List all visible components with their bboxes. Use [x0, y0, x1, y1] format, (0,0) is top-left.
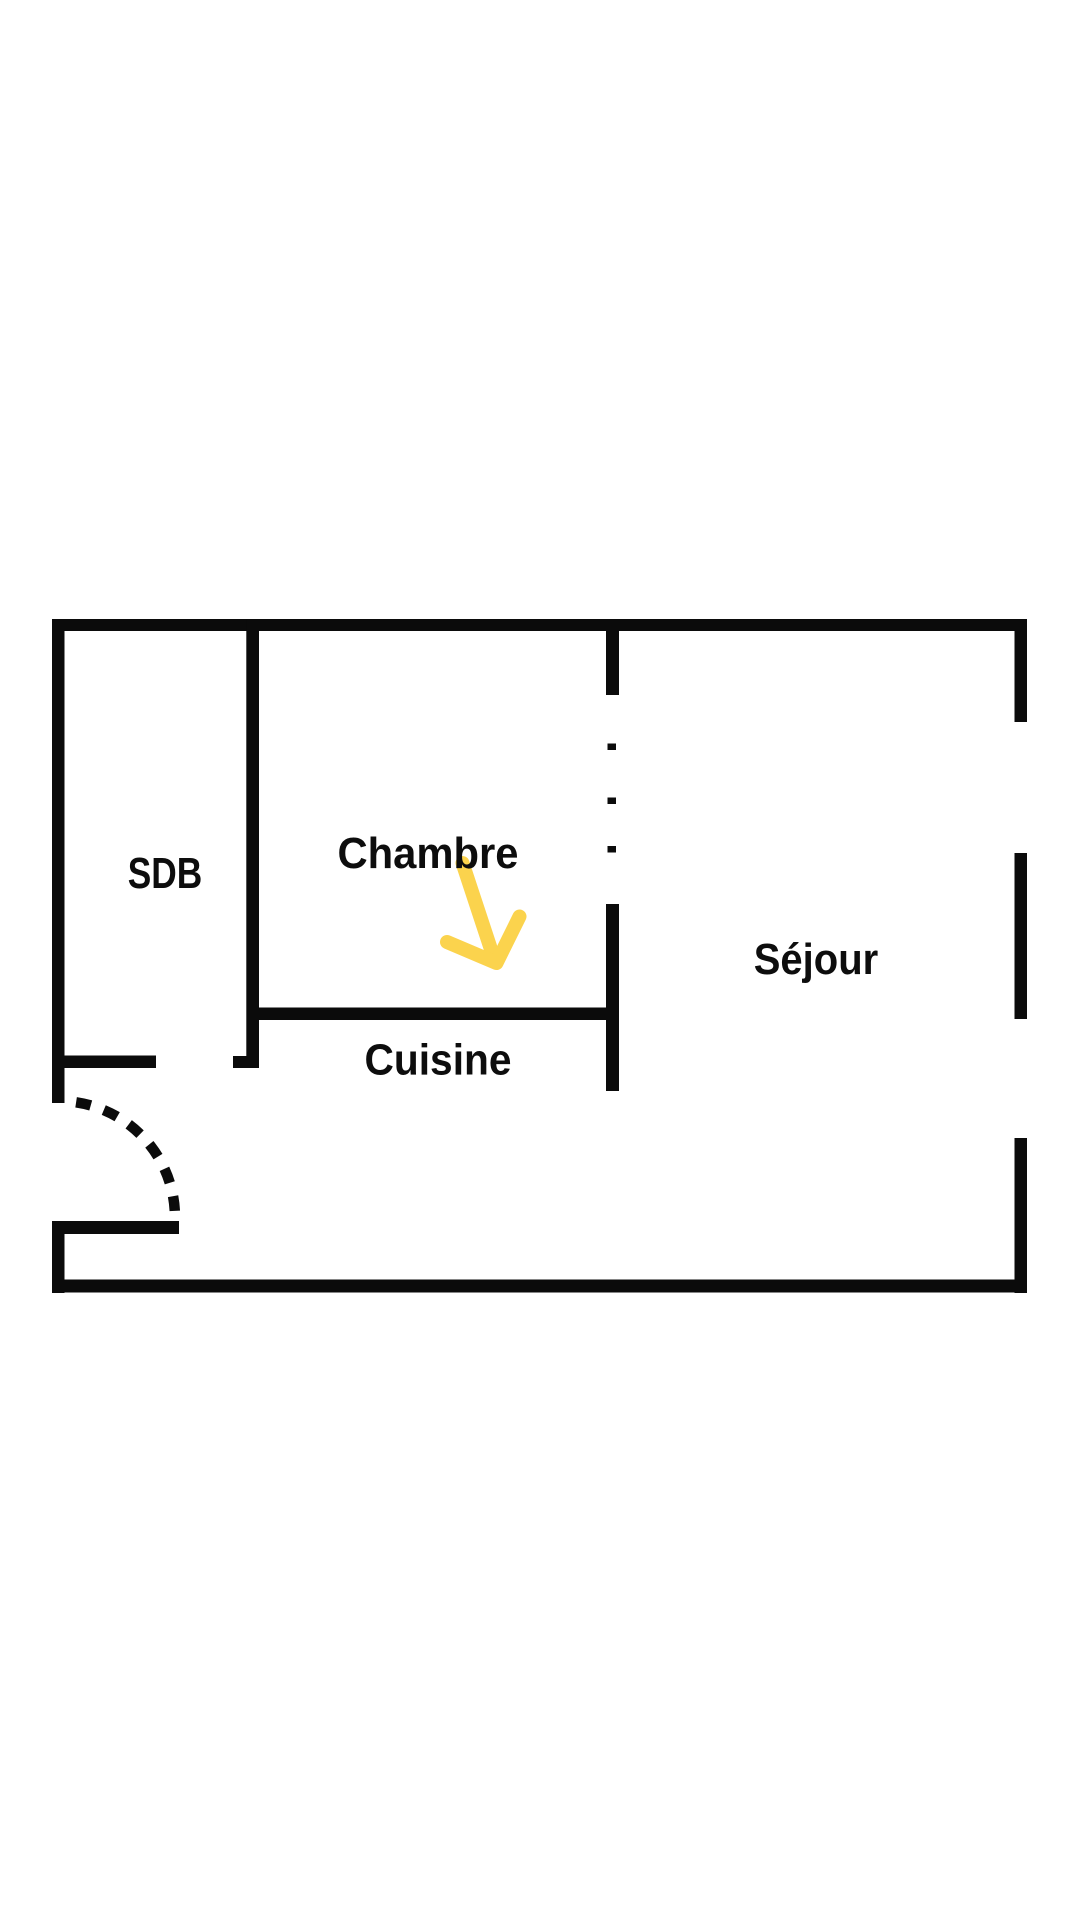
- svg-text:SDB: SDB: [128, 849, 203, 898]
- svg-text:Chambre: Chambre: [338, 829, 519, 878]
- svg-text:Cuisine: Cuisine: [365, 1036, 512, 1085]
- svg-text:Séjour: Séjour: [754, 935, 879, 984]
